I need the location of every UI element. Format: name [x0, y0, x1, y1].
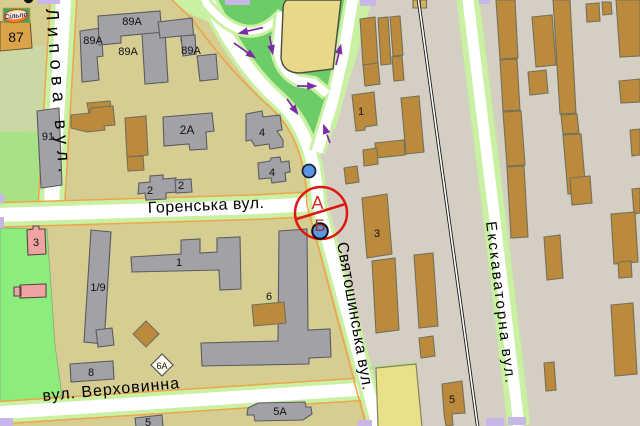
svg-text:1: 1 [358, 106, 364, 118]
svg-text:4: 4 [269, 167, 275, 179]
svg-text:3: 3 [33, 237, 39, 249]
svg-text:3: 3 [374, 228, 380, 240]
svg-text:89А: 89А [122, 16, 142, 28]
svg-text:2А: 2А [180, 123, 195, 137]
svg-text:5А: 5А [273, 406, 287, 418]
svg-text:89А: 89А [181, 45, 201, 57]
svg-text:А: А [311, 193, 323, 213]
svg-text:87: 87 [8, 29, 24, 45]
svg-text:6: 6 [266, 291, 272, 303]
svg-text:2: 2 [178, 180, 184, 192]
svg-text:89А: 89А [83, 35, 103, 47]
svg-text:5: 5 [145, 417, 151, 426]
svg-text:1/9: 1/9 [90, 282, 105, 294]
svg-text:6А: 6А [156, 361, 167, 371]
svg-text:8: 8 [88, 367, 94, 379]
svg-text:5: 5 [449, 394, 455, 406]
svg-text:2: 2 [147, 185, 153, 197]
svg-text:89А: 89А [118, 46, 138, 58]
svg-text:4: 4 [259, 127, 265, 139]
svg-text:Б: Б [314, 216, 325, 235]
svg-text:1: 1 [176, 257, 182, 269]
